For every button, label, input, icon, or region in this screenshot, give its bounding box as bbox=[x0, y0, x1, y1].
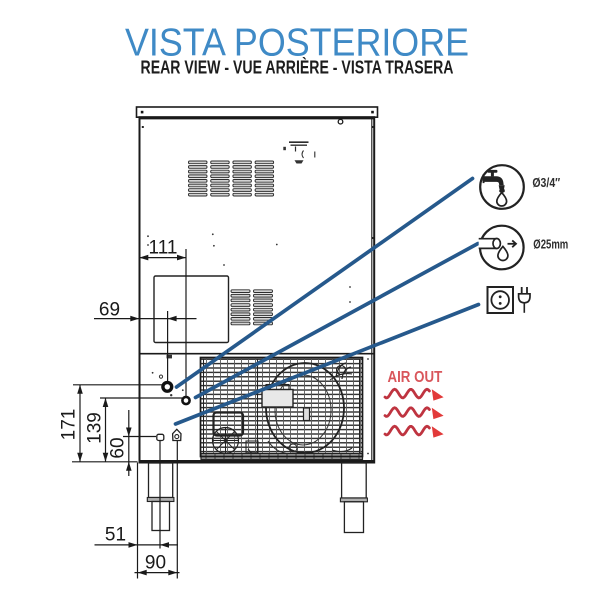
svg-text:171: 171 bbox=[59, 409, 80, 441]
svg-text:51: 51 bbox=[105, 525, 126, 546]
svg-text:Ø25mm: Ø25mm bbox=[533, 237, 568, 251]
svg-text:139: 139 bbox=[85, 412, 106, 444]
svg-text:60: 60 bbox=[108, 437, 129, 458]
svg-text:Ø3/4″: Ø3/4″ bbox=[532, 176, 560, 190]
svg-text:111: 111 bbox=[149, 238, 178, 259]
svg-text:AIR OUT: AIR OUT bbox=[388, 369, 443, 386]
svg-text:69: 69 bbox=[99, 300, 120, 321]
svg-text:90: 90 bbox=[145, 553, 166, 574]
svg-text:REAR VIEW - VUE ARRIÈRE - VIST: REAR VIEW - VUE ARRIÈRE - VISTA TRASERA bbox=[141, 57, 454, 78]
